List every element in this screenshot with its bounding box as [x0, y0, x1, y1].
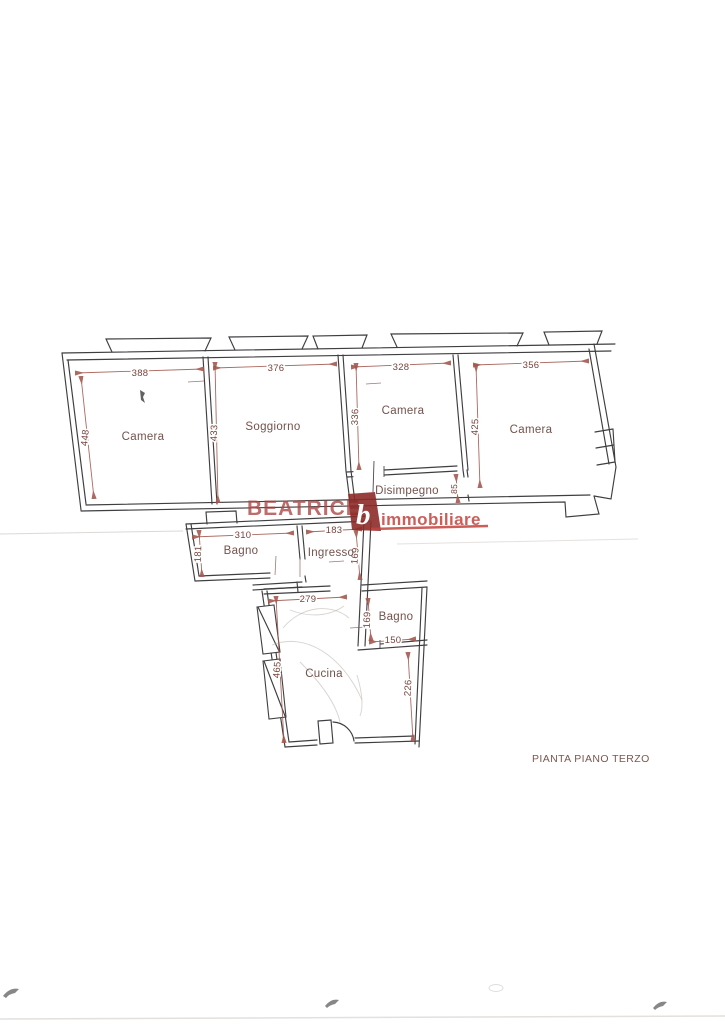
room-label-ingresso: Ingresso [308, 547, 355, 559]
room-label-disimpegno: Disimpegno [375, 485, 439, 497]
dim-camera-nw-height: 448 [79, 429, 92, 447]
watermark-brand-text: BEATRICE [247, 497, 361, 520]
room-label-bagno-mid: Bagno [224, 545, 259, 557]
dim-bagno-small-height: 169 [362, 611, 374, 628]
scan-artifact-lines [0, 531, 725, 1019]
scan-mark-left [3, 989, 19, 998]
dim-bagno-mid-height: 181 [193, 545, 205, 562]
dim-camera-ne-width: 356 [523, 360, 540, 371]
room-label-soggiorno: Soggiorno [245, 421, 300, 433]
dim-disimpegno-opening: 85 [449, 484, 459, 494]
dim-bagno-small-width: 150 [385, 635, 402, 646]
floorplan-scan: 388 376 328 356 448 433 336 425 85 310 1… [0, 0, 725, 1024]
room-label-camera-mid: Camera [382, 405, 425, 417]
dim-cucina-height2: 226 [403, 679, 415, 696]
dim-cucina-width: 279 [300, 594, 317, 605]
dim-ingresso-width: 183 [326, 525, 343, 536]
room-label-bagno-small: Bagno [379, 611, 414, 623]
dim-camera-mid-width: 328 [393, 362, 410, 373]
scan-mark-center [325, 1000, 339, 1008]
dim-camera-ne-height: 425 [470, 418, 482, 435]
scan-marks [3, 985, 667, 1011]
ink-blot [140, 390, 145, 403]
watermark-logo-letter-icon: b [356, 499, 371, 531]
scan-mark-right [653, 1002, 667, 1010]
dim-bagno-mid-width: 310 [235, 530, 252, 541]
room-label-cucina: Cucina [305, 668, 343, 680]
plan-title: PIANTA PIANO TERZO [532, 753, 650, 765]
room-label-camera-ne: Camera [510, 424, 553, 436]
window-bays [106, 331, 602, 352]
dim-camera-nw-width: 388 [132, 368, 149, 379]
scan-mark-faint [489, 985, 503, 992]
walls-middle-band [186, 511, 371, 646]
dim-camera-mid-height: 336 [350, 408, 362, 425]
dim-soggiorno-width: 376 [268, 363, 285, 374]
scanned-floorplan-page: { "title": "PIANTA PIANO TERZO", "waterm… [0, 0, 725, 1024]
dim-soggiorno-height: 433 [209, 424, 221, 441]
dim-cucina-height: 465 [271, 661, 283, 678]
room-label-camera-nw: Camera [122, 431, 165, 443]
